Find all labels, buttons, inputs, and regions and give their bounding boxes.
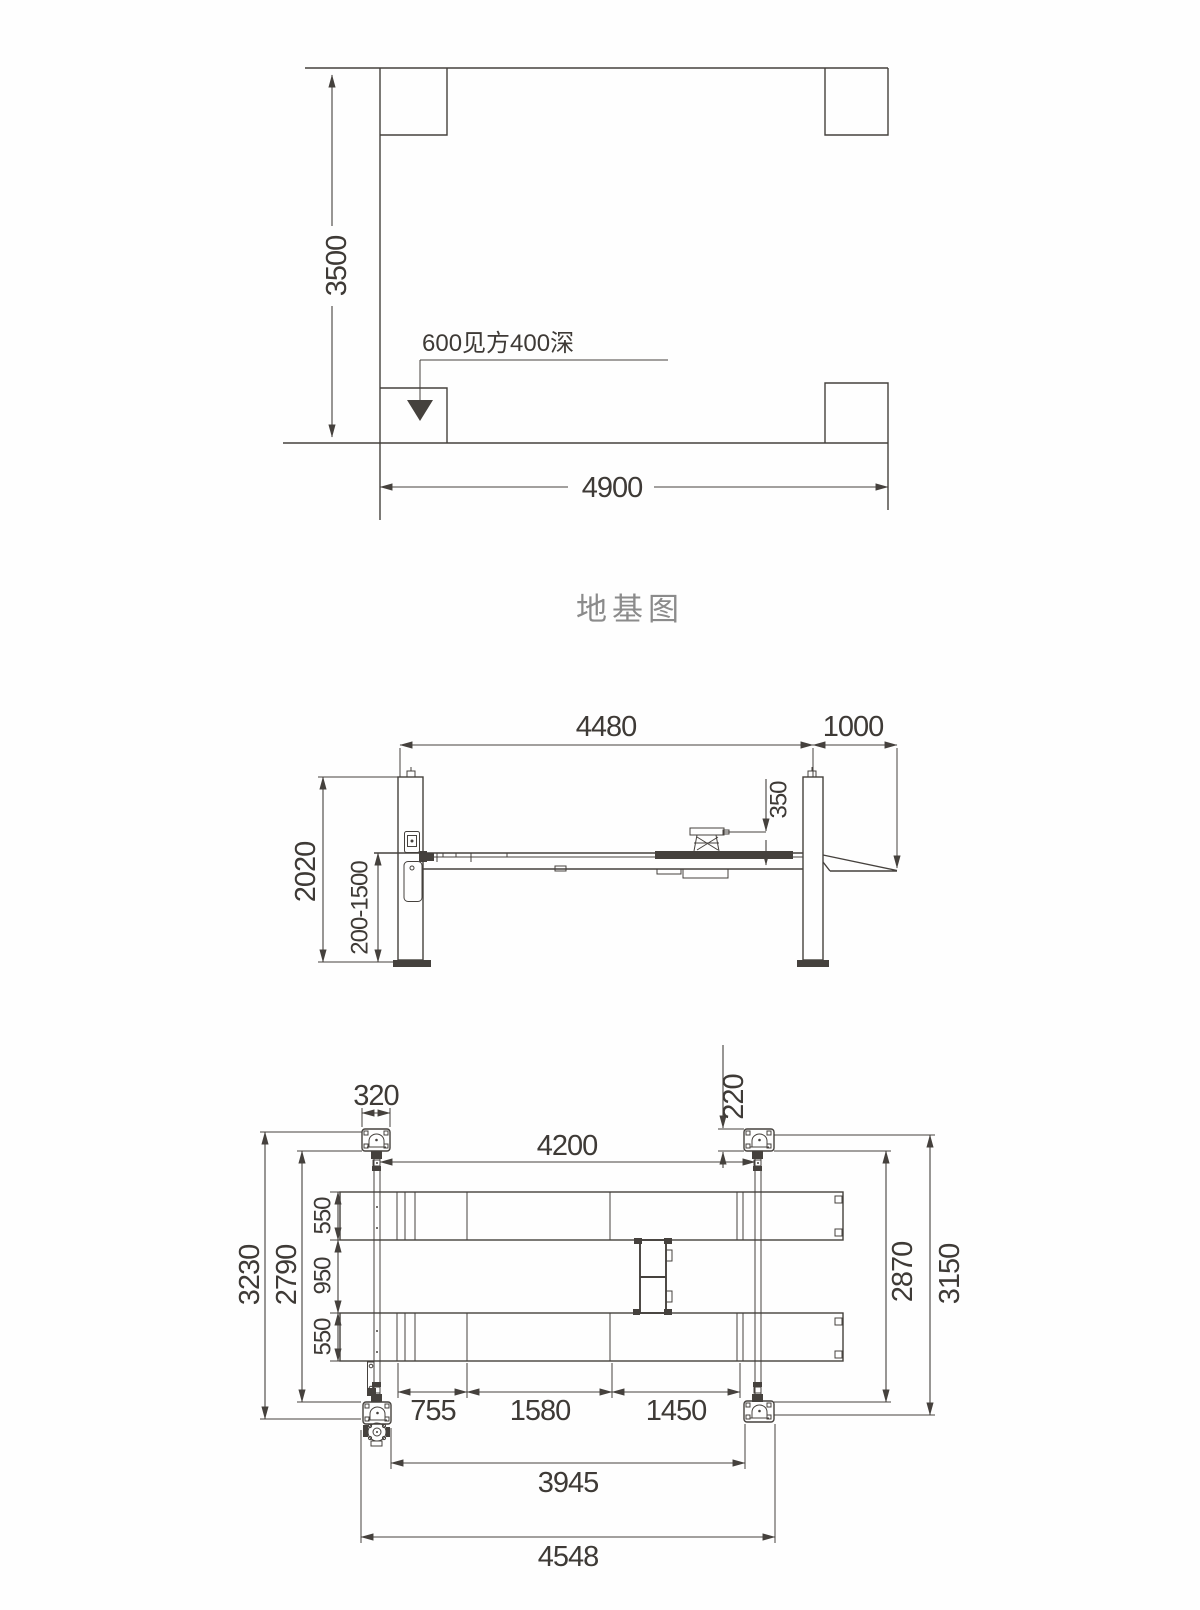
foundation-length-dim: 4900 bbox=[582, 472, 643, 504]
section-a-dim: 755 bbox=[410, 1395, 455, 1427]
right-inner-width-dim: 2870 bbox=[887, 1242, 919, 1303]
runway-width-front-dim: 550 bbox=[310, 1197, 337, 1235]
pit-note: 600见方400深 bbox=[422, 330, 574, 357]
pit-bottom-left bbox=[380, 388, 447, 443]
base-plate-top-right bbox=[744, 1129, 774, 1151]
ramp-length-dim: 1000 bbox=[823, 711, 884, 743]
frame-inner-width-dim: 2790 bbox=[271, 1245, 303, 1306]
base-plate-width-dim: 320 bbox=[353, 1080, 398, 1112]
leader-arrow bbox=[407, 400, 433, 421]
right-post bbox=[803, 777, 823, 960]
runway-gap-dim: 950 bbox=[310, 1257, 337, 1295]
carriage-box bbox=[404, 862, 422, 902]
pit-top-left bbox=[380, 68, 447, 135]
power-unit bbox=[363, 1423, 390, 1446]
foundation-width-dim: 3500 bbox=[321, 236, 353, 297]
base-plate-top-left bbox=[362, 1129, 390, 1151]
post-span-dim: 4480 bbox=[576, 711, 637, 743]
section-c-dim: 1450 bbox=[646, 1395, 707, 1427]
base-plate-depth-dim: 220 bbox=[718, 1074, 750, 1119]
rolling-jack-plan bbox=[633, 1238, 672, 1315]
lift-installation-drawing: 600见方400深 3500 4900 地基图 4480 1000 bbox=[0, 0, 1200, 1610]
foundation-caption: 地基图 bbox=[576, 592, 684, 627]
runway-width-rear-dim: 550 bbox=[310, 1318, 337, 1356]
pit-top-right bbox=[825, 68, 888, 135]
safety-locks bbox=[371, 1151, 763, 1402]
lift-range-dim: 200-1500 bbox=[347, 861, 374, 955]
base-plate-bottom-left bbox=[363, 1402, 391, 1424]
base-plate-bottom-right bbox=[744, 1401, 774, 1422]
plan-view: 320 220 4200 550 950 550 2790 3230 bbox=[234, 1045, 966, 1573]
pad-height-dim: 350 bbox=[766, 781, 793, 819]
left-post-base bbox=[393, 960, 431, 967]
rolling-jack bbox=[690, 828, 724, 835]
overall-length-dim: 4548 bbox=[538, 1541, 599, 1573]
pit-bottom-right bbox=[825, 383, 888, 443]
drawing-page: 600见方400深 3500 4900 地基图 4480 1000 bbox=[0, 0, 1200, 1610]
section-b-dim: 1580 bbox=[510, 1395, 571, 1427]
elevation-view: 4480 1000 bbox=[290, 711, 897, 967]
post-spacing-dim: 4200 bbox=[537, 1130, 598, 1162]
right-post-base bbox=[797, 960, 829, 967]
frame-outer-width-dim: 3230 bbox=[234, 1245, 266, 1306]
release-handle bbox=[367, 1362, 376, 1396]
column-height-dim: 2020 bbox=[290, 842, 322, 903]
runway-section-lines bbox=[397, 1192, 842, 1361]
drive-on-ramp bbox=[823, 855, 897, 871]
foundation-plan: 600见方400深 3500 4900 bbox=[283, 68, 888, 520]
jack-track bbox=[655, 851, 793, 859]
clear-length-dim: 3945 bbox=[538, 1467, 599, 1499]
right-outer-width-dim: 3150 bbox=[934, 1244, 966, 1305]
